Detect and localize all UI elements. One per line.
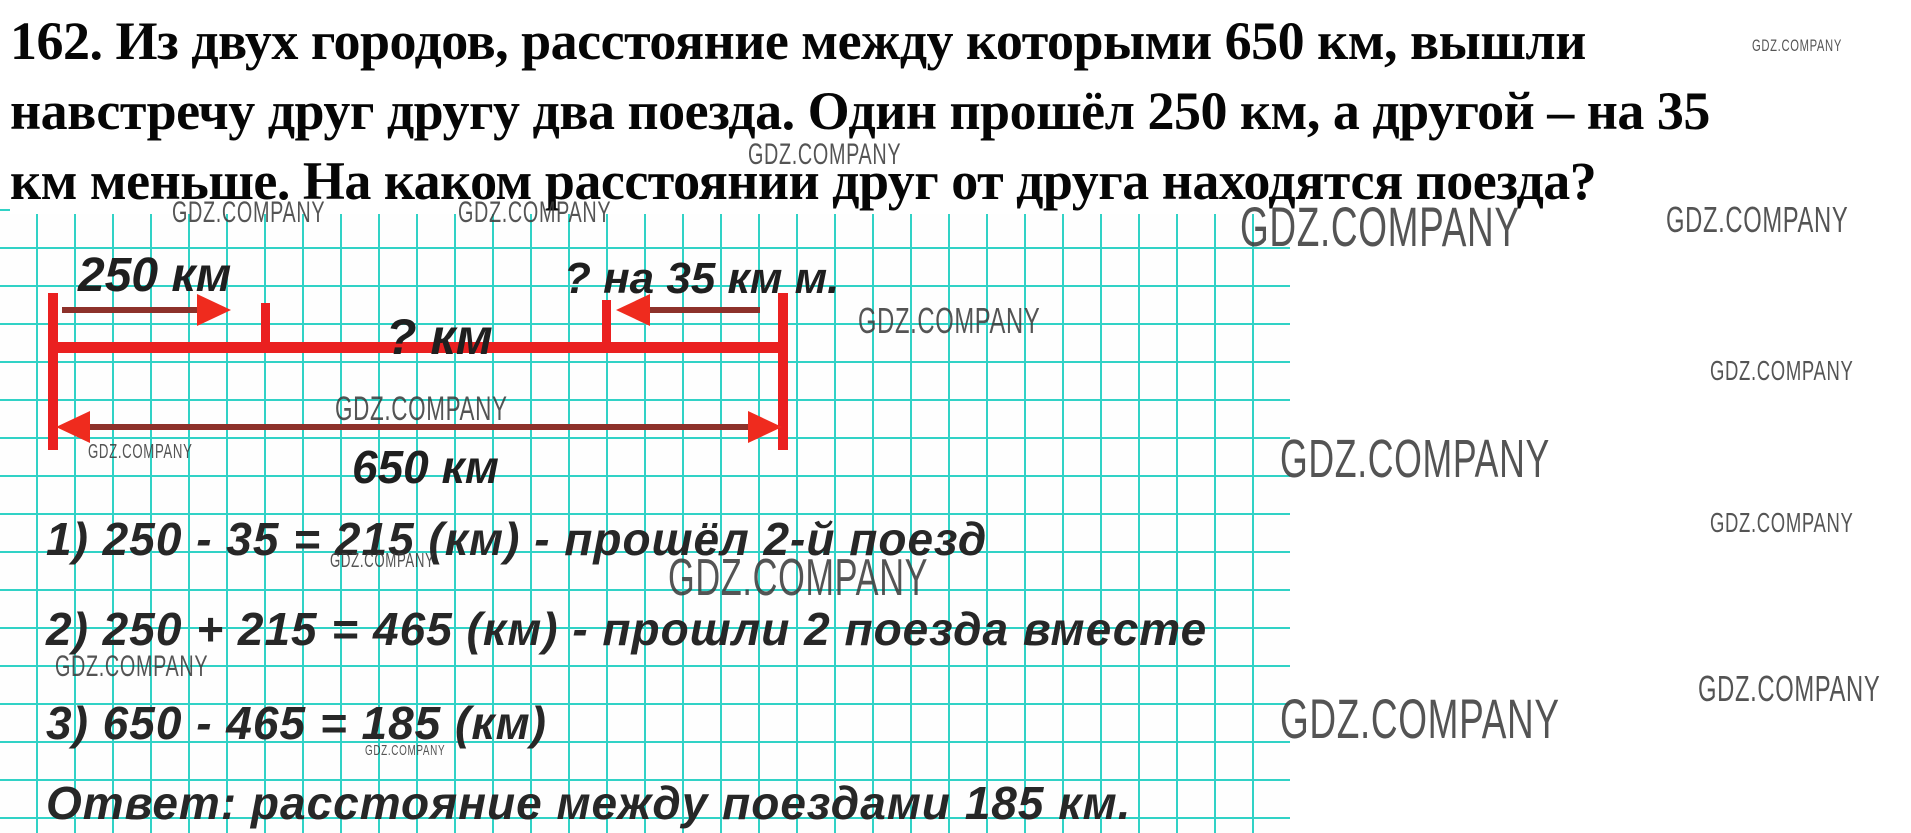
watermark-text: GDZ.COMPANY	[330, 550, 435, 573]
total-distance-arrow-right-head-icon	[748, 411, 782, 443]
watermark-text: GDZ.COMPANY	[748, 138, 901, 172]
watermark-text: GDZ.COMPANY	[1710, 355, 1853, 387]
answer-line: Ответ: расстояние между поездами 185 км.	[46, 776, 1131, 830]
watermark-text: GDZ.COMPANY	[1752, 36, 1842, 56]
tick-215km-point	[602, 300, 611, 353]
problem-text-line-1: 162. Из двух городов, расстояние между к…	[10, 8, 1592, 74]
watermark-text: GDZ.COMPANY	[1666, 199, 1848, 241]
watermark-text: GDZ.COMPANY	[668, 548, 928, 608]
label-first-train-distance: 250 км	[78, 248, 231, 303]
second-train-arrow-shaft	[650, 307, 760, 313]
total-distance-arrow-left-head-icon	[56, 411, 90, 443]
watermark-text: GDZ.COMPANY	[1710, 507, 1853, 539]
watermark-text: GDZ.COMPANY	[55, 650, 208, 684]
watermark-text: GDZ.COMPANY	[335, 390, 508, 429]
watermark-text: GDZ.COMPANY	[1280, 686, 1560, 751]
watermark-text: GDZ.COMPANY	[1698, 668, 1880, 710]
watermark-text: GDZ.COMPANY	[858, 300, 1040, 342]
label-second-train-distance: ? на 35 км м.	[564, 254, 839, 304]
watermark-text: GDZ.COMPANY	[172, 196, 325, 230]
watermark-text: GDZ.COMPANY	[1280, 428, 1550, 490]
watermark-text: GDZ.COMPANY	[365, 742, 445, 759]
watermark-text: GDZ.COMPANY	[88, 441, 193, 464]
label-total-distance: 650 км	[352, 440, 499, 494]
tick-250km-point	[261, 303, 270, 353]
watermark-text: GDZ.COMPANY	[458, 196, 611, 230]
solution-step-3: 3) 650 - 465 = 185 (км)	[46, 696, 547, 750]
first-train-arrow-shaft	[62, 307, 198, 313]
watermark-text: GDZ.COMPANY	[1240, 194, 1520, 259]
page-root: 162. Из двух городов, расстояние между к…	[0, 0, 1911, 833]
solution-step-2: 2) 250 + 215 = 465 (км) - прошли 2 поезд…	[46, 602, 1207, 656]
problem-text-line-2: навстречу друг другу два поезда. Один пр…	[10, 78, 1716, 144]
label-unknown-gap: ? км	[386, 308, 493, 366]
